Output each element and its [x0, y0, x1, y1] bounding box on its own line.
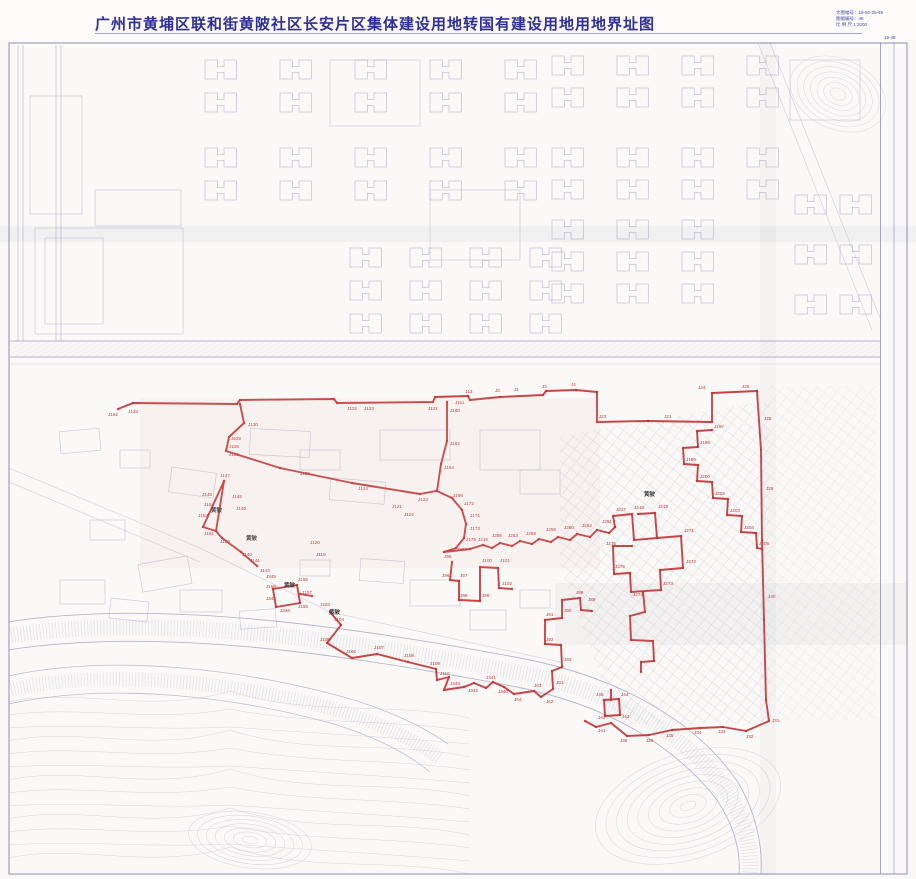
boundary-point-label: J31: [772, 718, 780, 723]
boundary-point-label: J200: [700, 474, 710, 479]
boundary-point-label: J35: [666, 733, 674, 738]
boundary-point-label: J272: [686, 559, 696, 564]
boundary-point-label: J101: [500, 558, 510, 563]
boundary-point-label: J205: [759, 541, 769, 546]
boundary-point-label: J123: [418, 497, 428, 502]
boundary-point-label: J151: [204, 531, 214, 536]
boundary-point-label: J29: [766, 486, 774, 491]
boundary-point-label: J146: [202, 492, 212, 497]
boundary-point-label: J342: [468, 688, 478, 693]
boundary-point-label: J88: [576, 590, 584, 595]
boundary-point-label: J218: [634, 505, 644, 510]
boundary-path: [437, 402, 466, 552]
boundary-point-label: J120: [310, 540, 320, 545]
boundary-point-label: J140: [242, 552, 252, 557]
boundary-point-label: J174: [457, 547, 467, 552]
place-name-label: 黄陂: [211, 506, 223, 514]
boundary-point-label: J92: [546, 637, 554, 642]
boundary-point-label: J172: [464, 501, 474, 506]
boundary-point-label: J216: [478, 537, 488, 542]
boundary-point-label: J95: [444, 554, 452, 559]
boundary-point-label: J155: [298, 604, 308, 609]
boundary-point-label: J90: [564, 608, 572, 613]
boundary-point-label: J1: [514, 387, 519, 392]
scanned-map-page: 广州市黄埔区联和街黄陂社区长安片区集体建设用地转国有建设用地用地界址图 大图幅号…: [0, 0, 916, 879]
boundary-point-label: J111: [455, 400, 465, 405]
boundary-point-label: J125: [300, 471, 310, 476]
map-area: 19-48 J152J134J132J133J131J111J13J2J1J3J…: [0, 0, 916, 879]
boundary-point-label: J273: [663, 581, 673, 586]
boundary-point-label: J38: [620, 738, 628, 743]
boundary-point-label: J13: [465, 389, 473, 394]
boundary-point-label: J106: [346, 649, 356, 654]
boundary-point-label: J26: [742, 384, 750, 389]
boundary-point-label: J4: [571, 382, 576, 387]
map-svg: 19-48 J152J134J132J133J131J111J13J2J1J3J…: [0, 0, 916, 879]
boundary-point-label: J121: [392, 504, 402, 509]
boundary-point-label: J102: [502, 581, 512, 586]
boundary-point-label: J107: [374, 645, 384, 650]
boundary-point-label: J99: [482, 593, 490, 598]
boundary-point-label: J169: [453, 493, 463, 498]
boundary-point-label: J259: [546, 527, 556, 532]
boundary-point-label: J134: [128, 409, 138, 414]
boundary-point-label: J110: [440, 671, 450, 676]
boundary-point-label: J141: [250, 558, 260, 563]
boundary-point-label: J175: [466, 537, 476, 542]
boundary-point-label: J128: [229, 444, 239, 449]
boundary-point-label: J180: [450, 408, 460, 413]
boundary-point-label: J3: [542, 384, 547, 389]
boundary-point-label: J45: [596, 692, 604, 697]
boundary-point-label: J63: [534, 683, 542, 688]
boundary-point-label: J103: [320, 602, 330, 607]
boundary-point-label: J275: [615, 564, 625, 569]
boundary-point-label: J44: [621, 692, 629, 697]
boundary-point-label: J197: [714, 424, 724, 429]
boundary-point-label: J263: [508, 533, 518, 538]
boundary-point-label: J182: [450, 441, 460, 446]
boundary-point-label: J219: [658, 504, 668, 509]
boundary-point-label: J43: [622, 714, 630, 719]
boundary-point-label: J199: [686, 457, 696, 462]
boundary-point-label: J171: [470, 513, 480, 518]
place-name-label: 黄陂: [329, 608, 341, 616]
boundary-point-label: J147: [220, 473, 230, 478]
boundary-point-label: J96: [442, 573, 450, 578]
boundary-point-label: J345: [266, 574, 276, 579]
boundary-point-label: J133: [364, 406, 374, 411]
boundary-point-label: J89: [588, 597, 596, 602]
boundary-point-label: J173: [470, 526, 480, 531]
boundary-point-label: J36: [646, 738, 654, 743]
boundary-point-label: J64: [514, 697, 522, 702]
boundary-point-label: J150: [220, 539, 230, 544]
boundary-point-label: J62: [546, 699, 554, 704]
boundary-point-label: J61: [556, 680, 564, 685]
boundary-point-label: J217: [616, 507, 626, 512]
boundary-point-label: J203: [730, 508, 740, 513]
boundary-point-label: J105: [320, 637, 330, 642]
boundary-point-label: J202: [715, 491, 725, 496]
basemap-layer: [8, 41, 898, 879]
boundary-point-label: J122: [404, 512, 414, 517]
boundary-point-label: J340: [498, 689, 508, 694]
boundary-point-label: J124: [358, 486, 368, 491]
boundary-point-label: J157: [302, 590, 312, 595]
boundary-point-label: J130: [248, 422, 258, 427]
boundary-point-label: J346: [280, 608, 290, 613]
boundary-point-label: J262: [582, 523, 592, 528]
boundary-point-label: J158: [266, 584, 276, 589]
boundary-point-label: J33: [718, 729, 726, 734]
boundary-point-label: J97: [460, 573, 468, 578]
boundary-point-label: J256: [492, 533, 502, 538]
place-name-label: 黄陂: [246, 534, 258, 542]
boundary-point-label: J41: [598, 728, 606, 733]
boundary-point-label: J260: [564, 525, 574, 530]
boundary-point-label: J274: [633, 592, 643, 597]
boundary-point-label: J98: [460, 593, 468, 598]
boundary-point-label: J152: [108, 412, 118, 417]
boundary-point-label: J104: [334, 617, 344, 622]
place-name-label: 黄陂: [284, 581, 296, 589]
boundary-point-label: J100: [482, 558, 492, 563]
boundary-point-label: J198: [700, 440, 710, 445]
boundary-point-label: J204: [744, 525, 754, 530]
boundary-point-label: J119: [316, 552, 326, 557]
boundary-point-label: J132: [347, 406, 357, 411]
boundary-point-label: J131: [428, 406, 438, 411]
boundary-point-label: J149: [236, 506, 246, 511]
boundary-point-label: J153: [198, 513, 208, 518]
boundary-point-label: J156: [298, 577, 308, 582]
boundary-point-label: J129: [231, 436, 241, 441]
boundary-point-label: J2: [495, 388, 500, 393]
boundary-point-label: J30: [768, 594, 776, 599]
boundary-point-label: J143: [260, 568, 270, 573]
boundary-point-label: J271: [684, 528, 694, 533]
boundary-point-label: J343: [450, 681, 460, 686]
boundary-point-label: J276: [606, 541, 616, 546]
boundary-point-label: J93: [564, 657, 572, 662]
boundary-point-label: J24: [698, 385, 706, 390]
boundary-point-label: J261: [602, 519, 612, 524]
boundary-point-label: J344: [266, 596, 276, 601]
sheet-label: 19-48: [884, 35, 896, 40]
place-name-label: 黄陂: [644, 490, 656, 498]
boundary-point-label: J23: [599, 414, 607, 419]
boundary-point-label: J91: [546, 612, 554, 617]
boundary-point-label: J32: [746, 734, 754, 739]
boundary-point-label: J42: [598, 715, 606, 720]
boundary-point-label: J126: [229, 452, 239, 457]
boundary-point-label: J258: [526, 531, 536, 536]
boundary-point-label: J154: [204, 502, 214, 507]
boundary-point-label: J184: [444, 465, 454, 470]
boundary-point-label: J341: [486, 675, 496, 680]
boundary-point-label: J21: [664, 414, 672, 419]
boundary-point-label: J34: [694, 730, 702, 735]
boundary-point-label: J28: [764, 416, 772, 421]
boundary-point-label: J148: [232, 494, 242, 499]
boundary-point-label: J108: [404, 653, 414, 658]
boundary-point-label: J109: [430, 661, 440, 666]
